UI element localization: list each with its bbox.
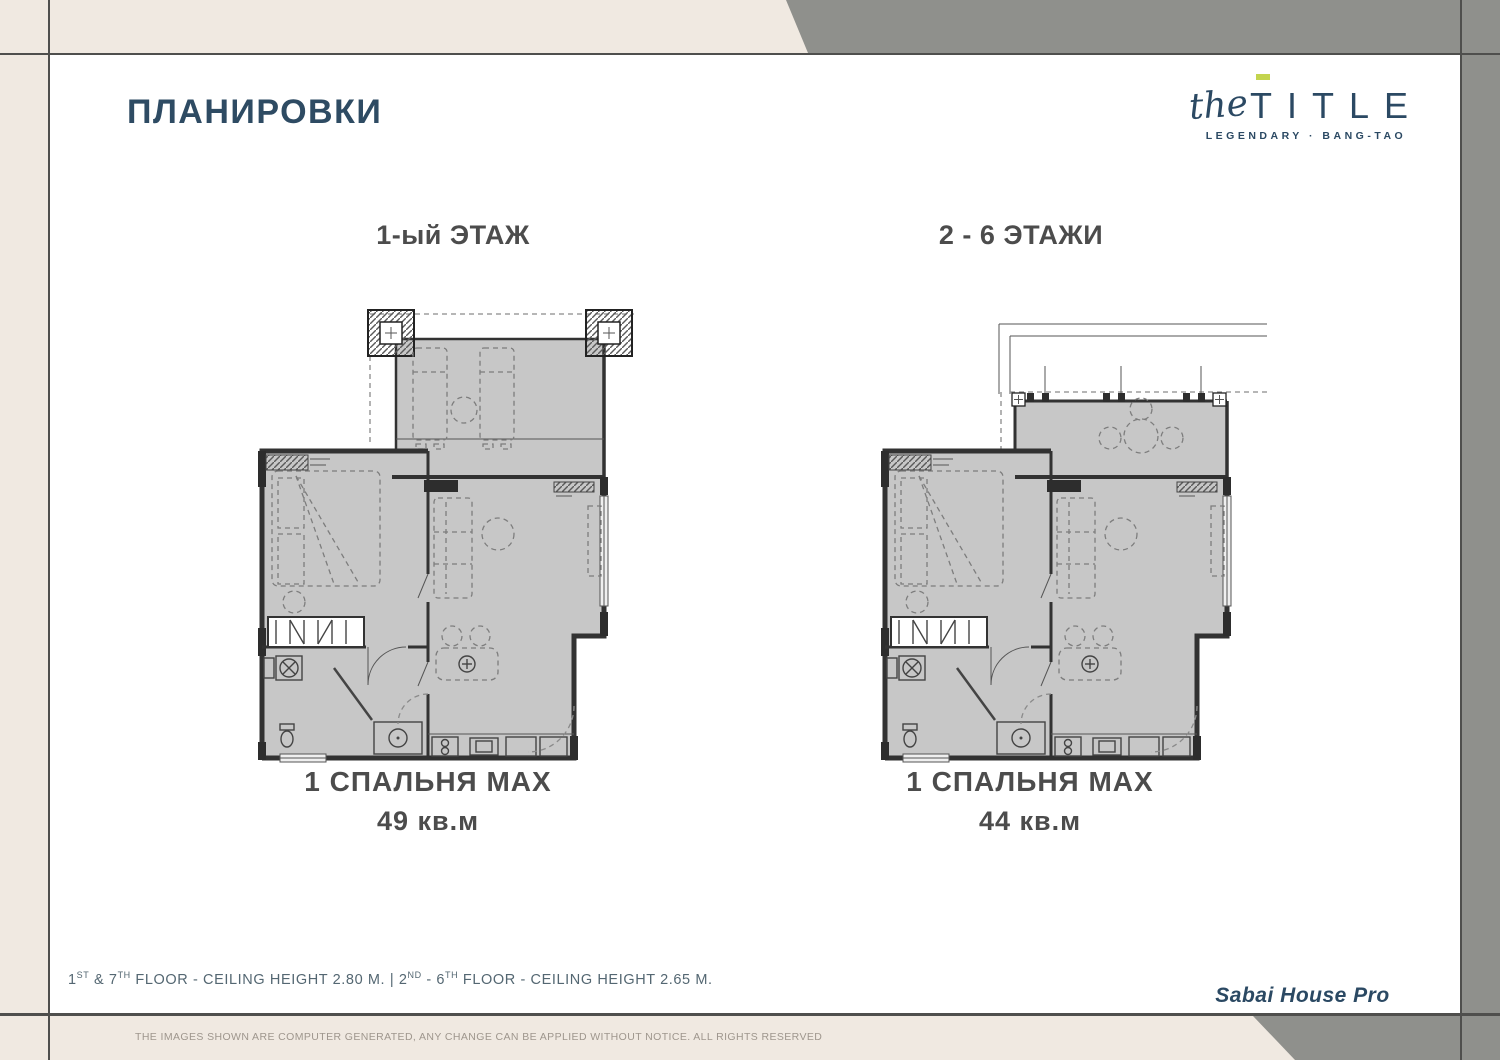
plan1-caption: 1 СПАЛЬНЯ MAX 49 кв.м: [233, 766, 623, 837]
floor-plan-floors-2-6: [879, 306, 1269, 768]
logo-script-the: the: [1188, 86, 1249, 126]
frame-right-strip: [1462, 0, 1500, 1060]
ceiling-height-note: 1ST & 7TH FLOOR - CEILING HEIGHT 2.80 M.…: [68, 970, 713, 988]
note-part: FLOOR - CEILING HEIGHT 2.65 M.: [458, 972, 712, 988]
plan1-area-label: 49 кв.м: [233, 806, 623, 837]
frame-line-bottom: [0, 1013, 1500, 1016]
floor-plan-first-floor: [256, 306, 646, 768]
note-sup: TH: [118, 970, 131, 980]
slide: ПЛАНИРОВКИ the TITLE LEGENDARY · BANG-TA…: [0, 0, 1500, 1060]
note-sup: ST: [77, 970, 90, 980]
project-name: Sabai House Pro: [1180, 984, 1425, 1008]
plan2-caption: 1 СПАЛЬНЯ MAX 44 кв.м: [835, 766, 1225, 837]
note-part: FLOOR - CEILING HEIGHT 2.80 M. | 2: [131, 972, 408, 988]
logo-green-accent: [1256, 74, 1270, 80]
plan1-unit-label: 1 СПАЛЬНЯ MAX: [233, 766, 623, 798]
logo-word-title: TITLE: [1250, 88, 1423, 124]
logo-letters-itle: ITLE: [1287, 85, 1423, 126]
frame-line-top: [0, 53, 1500, 55]
disclaimer-text: THE IMAGES SHOWN ARE COMPUTER GENERATED,…: [135, 1031, 822, 1043]
plan2-floor-label: 2 - 6 ЭТАЖИ: [826, 220, 1216, 251]
frame-line-right: [1460, 0, 1462, 1060]
note-part: 1: [68, 972, 77, 988]
note-part: & 7: [89, 972, 117, 988]
note-sup: TH: [445, 970, 458, 980]
plan2-area-label: 44 кв.м: [835, 806, 1225, 837]
frame-left-strip: [0, 0, 48, 1060]
plan2-unit-label: 1 СПАЛЬНЯ MAX: [835, 766, 1225, 798]
note-part: - 6: [422, 972, 445, 988]
logo-letter-t: T: [1250, 85, 1287, 126]
page-title: ПЛАНИРОВКИ: [127, 93, 382, 132]
plan1-floor-label: 1-ый ЭТАЖ: [258, 220, 648, 251]
note-sup: ND: [407, 970, 421, 980]
brand-logo: the TITLE LEGENDARY · BANG-TAO: [1182, 72, 1430, 142]
brand-logo-wordmark: the TITLE: [1182, 72, 1430, 124]
logo-tagline: LEGENDARY · BANG-TAO: [1182, 130, 1430, 142]
frame-line-left: [48, 0, 50, 1060]
